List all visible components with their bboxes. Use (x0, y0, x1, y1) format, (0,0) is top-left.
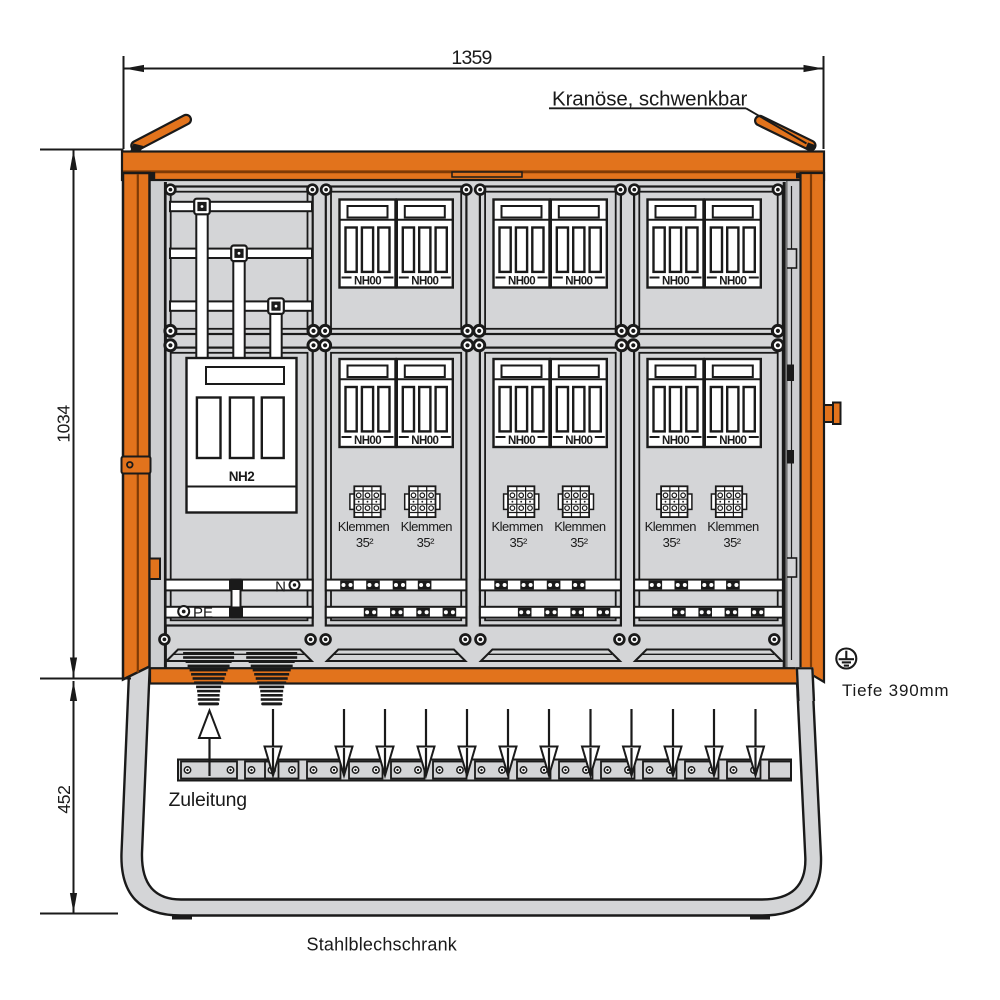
svg-text:Klemmen: Klemmen (707, 519, 759, 534)
svg-text:35²: 35² (417, 535, 435, 550)
svg-text:1034: 1034 (54, 405, 74, 443)
svg-text:452: 452 (54, 786, 74, 814)
svg-text:Klemmen: Klemmen (338, 519, 390, 534)
svg-text:Klemmen: Klemmen (645, 519, 697, 534)
svg-text:35²: 35² (663, 535, 681, 550)
svg-text:35²: 35² (510, 535, 528, 550)
svg-text:Kranöse, schwenkbar: Kranöse, schwenkbar (552, 88, 748, 111)
svg-text:Klemmen: Klemmen (554, 519, 606, 534)
svg-text:N: N (275, 579, 286, 596)
svg-text:Zuleitung: Zuleitung (169, 789, 247, 811)
svg-text:1359: 1359 (451, 47, 491, 69)
svg-text:Klemmen: Klemmen (401, 519, 453, 534)
svg-text:Tiefe 390mm: Tiefe 390mm (842, 681, 949, 700)
svg-text:NH2: NH2 (229, 469, 255, 484)
svg-text:Klemmen: Klemmen (491, 519, 543, 534)
svg-text:PE: PE (193, 605, 213, 622)
svg-text:Stahlblechschrank: Stahlblechschrank (307, 935, 458, 955)
svg-text:35²: 35² (570, 535, 588, 550)
svg-text:35²: 35² (356, 535, 374, 550)
svg-text:35²: 35² (723, 535, 741, 550)
